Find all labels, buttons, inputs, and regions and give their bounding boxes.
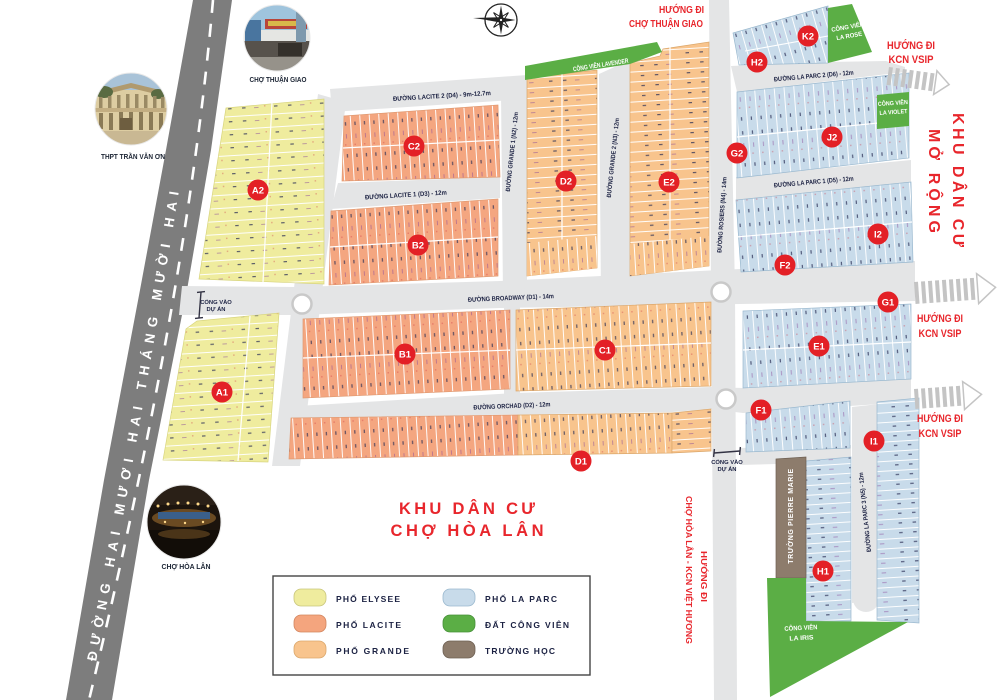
svg-text:PHỐ GRANDE: PHỐ GRANDE [336, 645, 410, 656]
svg-text:F2: F2 [779, 261, 790, 272]
svg-text:HƯỚNG ĐI: HƯỚNG ĐI [917, 312, 963, 325]
svg-text:ĐẤT CÔNG VIÊN: ĐẤT CÔNG VIÊN [485, 619, 570, 630]
svg-text:I1: I1 [870, 437, 879, 448]
svg-text:C2: C2 [408, 142, 420, 153]
svg-text:D2: D2 [560, 177, 572, 188]
svg-text:J2: J2 [827, 133, 838, 144]
svg-text:H2: H2 [751, 58, 763, 69]
svg-text:E1: E1 [813, 342, 825, 353]
svg-text:C1: C1 [599, 346, 612, 357]
svg-text:HƯỚNG ĐI: HƯỚNG ĐI [699, 551, 710, 602]
svg-text:A1: A1 [216, 388, 229, 399]
svg-text:G1: G1 [882, 298, 895, 309]
svg-text:KHU DÂN CƯ: KHU DÂN CƯ [399, 499, 535, 518]
svg-text:PHỐ LACITE: PHỐ LACITE [336, 619, 402, 630]
svg-text:B2: B2 [412, 241, 424, 252]
svg-text:A2: A2 [252, 186, 264, 197]
svg-text:DỰ ÁN: DỰ ÁN [718, 466, 737, 473]
svg-text:LA IRIS: LA IRIS [789, 634, 814, 642]
svg-text:TRƯỜNG PIERRE MARIE: TRƯỜNG PIERRE MARIE [786, 468, 795, 564]
svg-text:E2: E2 [663, 178, 675, 189]
svg-text:KCN VSIP: KCN VSIP [889, 54, 934, 66]
svg-text:KCN VSIP: KCN VSIP [919, 328, 962, 340]
svg-text:D1: D1 [575, 457, 588, 468]
svg-text:CỔNG VÀO: CỔNG VÀO [200, 299, 232, 306]
svg-text:PHỐ LA PARC: PHỐ LA PARC [485, 593, 558, 604]
svg-text:B1: B1 [399, 350, 412, 361]
svg-text:F1: F1 [755, 406, 767, 417]
svg-text:K2: K2 [802, 32, 814, 43]
svg-text:CHỢ THUẬN GIAO: CHỢ THUẬN GIAO [629, 17, 703, 30]
svg-text:G2: G2 [731, 149, 744, 160]
svg-text:PHỐ ELYSEE: PHỐ ELYSEE [336, 593, 401, 604]
svg-text:THPT TRẦN VĂN ƠN: THPT TRẦN VĂN ƠN [101, 151, 165, 161]
svg-text:DỰ ÁN: DỰ ÁN [207, 306, 226, 313]
svg-text:KCN VSIP: KCN VSIP [919, 428, 962, 440]
svg-text:I2: I2 [874, 230, 882, 241]
svg-text:HƯỚNG ĐI: HƯỚNG ĐI [887, 39, 935, 52]
svg-text:CỔNG VÀO: CỔNG VÀO [711, 459, 743, 466]
svg-text:KHU DÂN CƯ: KHU DÂN CƯ [949, 113, 968, 248]
svg-text:H1: H1 [817, 567, 830, 578]
svg-text:CHỢ HÒA LÂN - KCN VIỆT HƯƠNG: CHỢ HÒA LÂN - KCN VIỆT HƯƠNG [684, 496, 695, 644]
svg-text:TRƯỜNG HỌC: TRƯỜNG HỌC [485, 645, 556, 656]
svg-text:HƯỚNG ĐI: HƯỚNG ĐI [917, 412, 963, 425]
svg-text:CHỢ HÒA LÂN: CHỢ HÒA LÂN [391, 521, 544, 540]
svg-text:CHỢ HÒA LÂN: CHỢ HÒA LÂN [162, 562, 211, 571]
svg-text:CHỢ THUẬN GIAO: CHỢ THUẬN GIAO [250, 75, 307, 84]
svg-text:HƯỚNG ĐI: HƯỚNG ĐI [659, 3, 704, 16]
